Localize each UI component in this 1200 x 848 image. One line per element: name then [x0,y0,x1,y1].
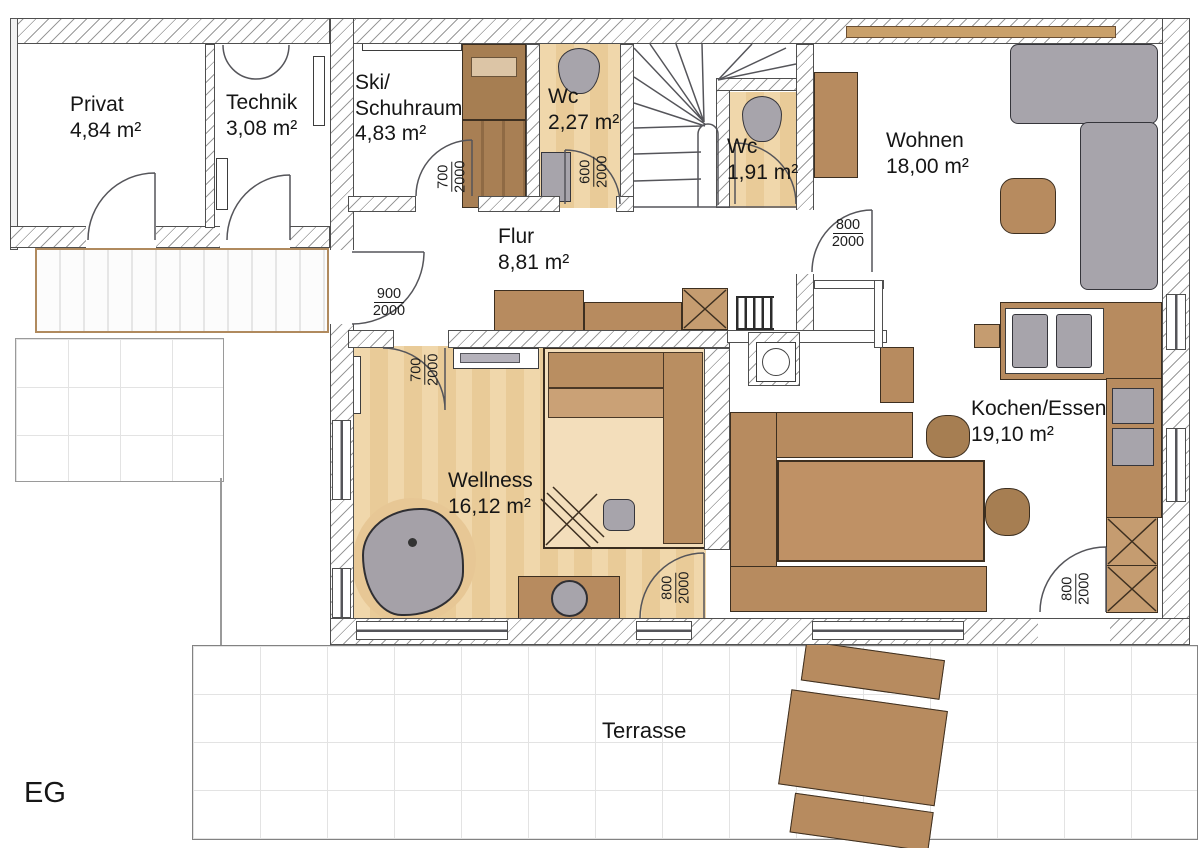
sauna-heater [603,499,635,531]
wall-hall-south-a [348,330,394,348]
dim-entry-door: 900 2000 [362,286,416,319]
dim-wohnen-door: 800 2000 [821,217,875,250]
sofa-chaise [1080,122,1158,290]
radiator [736,296,774,330]
dim-wellness-kitchen-door: 800 2000 [659,561,692,615]
dim-wellness-door: 700 2000 [408,343,441,397]
room-area: 4,83 m² [355,121,462,147]
technik-wall-unit [313,56,325,126]
wall-hall-south-b [448,330,730,348]
wall-annex-top [10,18,330,44]
wall-hall-north-a [348,196,416,212]
room-area: 8,81 m² [498,250,569,276]
technik-arc [223,45,289,79]
room-label-flur: Flur 8,81 m² [498,224,569,275]
dining-bench-bottom [730,566,987,612]
room-area: 16,12 m² [448,494,533,520]
room-name: Wohnen [886,128,969,154]
sauna [543,347,707,549]
window [1166,428,1186,502]
dining-chair [985,488,1030,536]
dim-height: 2000 [453,150,469,204]
flue-circle [762,348,790,376]
room-name: Ski/ [355,70,462,96]
sink-basin [1012,314,1048,368]
terrace-tiles [192,645,1198,840]
room-label-wellness: Wellness 16,12 m² [448,468,533,519]
dim-width: 800 [659,573,676,603]
terrace-door-opening [1038,619,1110,644]
kitchen-stool [974,324,1000,348]
tall-cabinet [1106,517,1158,566]
wall-main-left-upper [330,18,354,252]
room-name: Privat [70,92,141,118]
entry-door-opening [330,250,354,324]
patio-tiles [15,338,224,482]
dim-height: 2000 [595,145,611,199]
room-name: Flur [498,224,569,250]
stair-handrail [698,124,718,207]
wardrobe-lower [462,120,526,208]
wall-hall-north-c [616,196,634,212]
cooktop-module [1112,388,1154,424]
window [812,621,964,640]
terrace-table [778,689,948,806]
room-label-wohnen: Wohnen 18,00 m² [886,128,969,179]
room-area: 19,10 m² [971,422,1106,448]
kitchen-cabinet [880,347,914,403]
dim-height: 2000 [677,561,693,615]
room-label-wc-klein: Wc 1,91 m² [727,134,798,185]
wall-privat-technik [205,44,215,228]
floor-plan: Privat 4,84 m² Technik 3,08 m² Ski/ Schu… [0,0,1200,848]
wall-wc-stairs [620,44,634,208]
room-name: Terrasse [602,718,686,745]
dim-height: 2000 [362,303,416,319]
wall-wellness-kitchen [704,348,730,550]
wardrobe-shelf [471,57,517,77]
room-label-technik: Technik 3,08 m² [226,90,297,141]
whirlpool-knob [408,538,417,547]
patio-step-line [220,478,222,648]
window [356,621,508,640]
wall-niche-side [874,280,883,348]
dim-terrace-door: 800 2000 [1059,562,1092,616]
wellness-bench-cushion [460,353,520,363]
room-name: Wellness [448,468,533,494]
dim-width: 800 [1059,574,1076,604]
deck-door-opening [220,226,290,248]
terrace-furniture-group [767,637,963,848]
window [332,420,351,500]
sofa-section [1010,44,1158,124]
dim-width: 700 [408,355,425,385]
wall-ski-wc [526,44,540,208]
dining-chair [926,415,970,458]
room-area: 3,08 m² [226,116,297,142]
wardrobe-upper [462,44,526,120]
room-name: Schuhraum [355,96,462,122]
dining-table [777,460,985,562]
dim-height: 2000 [1077,562,1093,616]
room-area: 4,84 m² [70,118,141,144]
ottoman [1000,178,1056,234]
wall-hall-north-b [478,196,560,212]
vanity-sink [551,580,588,617]
dim-height: 2000 [426,343,442,397]
dim-ski-door: 700 2000 [435,150,468,204]
dim-width: 900 [374,286,404,303]
room-area: 2,27 m² [548,110,619,136]
wohnen-door-opening [796,210,814,274]
room-label-kochen: Kochen/Essen 19,10 m² [971,396,1106,447]
window [1166,294,1186,350]
wall-hall-wohnen-upper [796,44,814,212]
wc-sink [541,152,571,202]
window [636,621,692,640]
dim-wc-door: 600 2000 [577,145,610,199]
room-area: 18,00 m² [886,154,969,180]
deck-door-opening [86,226,156,248]
sideboard [814,72,858,178]
hall-sideboard [494,290,584,332]
room-label-ski: Ski/ Schuhraum 4,83 m² [355,70,462,147]
room-name: Technik [226,90,297,116]
wellness-bench [453,348,539,369]
tall-cabinet [1106,565,1158,613]
room-name: Kochen/Essen [971,396,1106,422]
window [332,568,351,618]
sauna-bench-side [663,352,703,544]
cooktop-module [1112,428,1154,466]
technik-wall-unit [216,158,228,210]
floor-name: EG [24,776,66,811]
wall-small-wc-top [716,78,808,91]
wall-hall-wohnen-lower [796,272,814,334]
window-sill [846,26,1116,38]
whirlpool-tub [362,508,464,616]
dim-height: 2000 [821,234,875,250]
dim-width: 600 [577,157,594,187]
room-name: Wc [727,134,798,160]
deck [35,248,329,333]
room-area: 1,91 m² [727,160,798,186]
room-label-privat: Privat 4,84 m² [70,92,141,143]
dim-width: 700 [435,162,452,192]
hall-cabinet [682,288,728,330]
floor-label: EG [24,776,66,811]
hall-sideboard [584,302,682,332]
wall-annex-left [10,18,18,250]
dim-width: 800 [833,217,863,234]
room-label-terrasse: Terrasse [602,718,686,745]
room-label-wc: Wc 2,27 m² [548,84,619,135]
room-name: Wc [548,84,619,110]
sink-basin [1056,314,1092,368]
